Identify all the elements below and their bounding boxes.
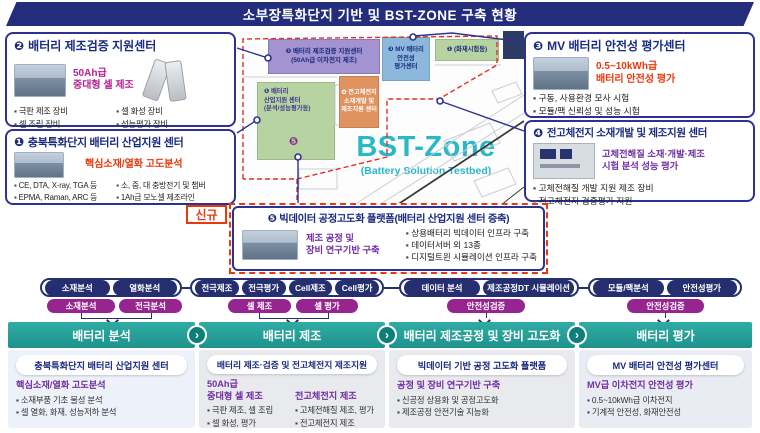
building-photo [242, 230, 298, 260]
center-box-5-header: ❺ 빅데이터 공정고도화 플랫폼(배터리 산업지원 센터 증축) [234, 210, 543, 225]
header-battery-manufacture: 배터리 제조 [199, 322, 385, 348]
map-block-manufacture-verify: ❷ 배터리 제조검증 지원센터 (50Ah급 이차전지 제조) [268, 39, 380, 74]
badge-1-icon: ❶ [14, 135, 24, 149]
header-battery-evaluation: 배터리 평가 [579, 322, 752, 348]
pill-electrode-eval: 전극평가 [242, 280, 286, 296]
body-battery-manufacture: 배터리 제조·검증 및 전고체전지 제조지원 50Ah급 중대형 셀 제조 극판… [199, 350, 385, 428]
pill-data-analysis: 데이터 분석 [404, 280, 480, 296]
pill-material-analysis: 소재분석 [45, 280, 110, 296]
analysis-list: CE, DTA, X-ray, TGA 등 소, 중, 대 충방전기 및 챔버 … [14, 180, 227, 203]
pill2-electrode-analysis: 전극분석 [119, 299, 182, 313]
solid-state-highlight: 고체전해질 소재·개발·제조 시험 분석 성능 평가 [602, 149, 705, 172]
arrow-right-icon: › [379, 327, 395, 343]
facility-pill: MV 배터리 안전성 평가센터 [587, 355, 744, 375]
page-title: 소부장특화단지 기반 및 BST-ZONE 구축 현황 [6, 2, 754, 26]
infra-list: 상용배터리 빅데이터 인프라 구축 데이터서버 외 13종 디지털트윈 시뮬레이… [406, 227, 537, 263]
capacity-highlight: 50Ah급 중대형 셀 제조 [73, 68, 134, 93]
pill-safety-eval: 안전성평가 [667, 280, 738, 296]
center-box-2: ❷ 배터리 제조검증 지원센터 50Ah급 중대형 셀 제조 극판 제조 장비 … [5, 32, 236, 127]
site-map: ❷ 배터리 제조검증 지원센터 (50Ah급 이차전지 제조) ❸ MV 배터리… [239, 29, 524, 205]
pill2-safety-verify-b: 안전성검증 [627, 299, 704, 313]
badge-2-icon: ❷ [14, 39, 24, 53]
facility-pill: 충북특화단지 배터리 산업지원 센터 [16, 355, 187, 375]
pill-module-pack-analysis: 모듈/팩분석 [593, 280, 664, 296]
platform-highlight: 제조 공정 및 장비 연구기반 구축 [306, 233, 398, 256]
bst-zone-label: BST-Zone (Battery Solution Testbed) [331, 133, 521, 177]
center-box-3: ❸ MV 배터리 안전성 평가센터 0.5~10kWh급 배터리 안전성 평가 … [524, 32, 755, 118]
building-photo [533, 57, 589, 90]
center-box-4-header: ❹ 전고체전지 소재개발 및 제조지원 센터 [533, 125, 746, 140]
pill2-cell-make: 셀 제조 [228, 299, 291, 313]
body-process-upgrade: 빅데이터 기반 공정 고도화 플랫폼 공정 및 장비 연구기반 구축 신공정 상… [389, 350, 575, 428]
pill-group-process: 데이터 분석 제조공정DT 시뮬레이션 [399, 278, 579, 297]
arrow-right-icon: › [189, 327, 205, 343]
battery-cells-image [141, 57, 189, 103]
badge-3-icon: ❸ [533, 39, 543, 53]
body-battery-analysis: 충북특화단지 배터리 산업지원 센터 핵심소재/열화 고도분석 소재부품 기초 … [8, 350, 195, 428]
body-battery-evaluation: MV 배터리 안전성 평가센터 MV급 이차전지 안전성 평가 0.5~10kW… [579, 350, 752, 428]
pill-group-manufacture: 전극제조 전극평가 Cell제조 Cell평가 [190, 278, 384, 297]
new-badge: 신규 [186, 205, 227, 224]
bst-zone-subtitle: (Battery Solution Testbed) [331, 165, 521, 177]
arrow-right-icon: › [569, 327, 585, 343]
capacity-highlight: 0.5~10kWh급 배터리 안전성 평가 [596, 61, 675, 86]
column-subtitle: 핵심소재/열화 고도분석 [16, 380, 187, 392]
center-box-2-header: ❷ 배터리 제조검증 지원센터 [14, 37, 227, 54]
pill2-safety-verify-a: 안전성검증 [447, 299, 525, 313]
center-box-3-header: ❸ MV 배터리 안전성 평가센터 [533, 37, 746, 54]
pill-electrode-make: 전극제조 [195, 280, 239, 296]
center-box-5: ❺ 빅데이터 공정고도화 플랫폼(배터리 산업지원 센터 증축) 제조 공정 및… [229, 203, 548, 274]
group-connector [182, 287, 190, 289]
column-subtitle: MV급 이차전지 안전성 평가 [587, 380, 744, 392]
analysis-highlight: 핵심소재/열화 고도분석 [85, 159, 183, 172]
center-box-1-header: ❶ 충북특화단지 배터리 산업지원 센터 [14, 134, 227, 150]
badge-5-icon: ❺ [268, 213, 277, 225]
pill-cell-make: Cell제조 [289, 280, 333, 296]
center-box-1: ❶ 충북특화단지 배터리 산업지원 센터 핵심소재/열화 고도분석 CE, DT… [5, 129, 236, 205]
equipment-photo [533, 143, 595, 179]
pill-cell-eval: Cell평가 [335, 280, 379, 296]
group-connector [579, 287, 588, 289]
subcol-large-cell: 50Ah급 중대형 셀 제조 극판 제조, 셀 조립 셀 화성, 평가 [207, 379, 289, 429]
test-list: 구동, 사용환경 모사 시험 모듈/팩 신뢰성 및 성능 시험 [533, 92, 746, 118]
map-block-industry-support: ❶ 배터리 산업지원 센터 (분석/성능평가동) [257, 82, 335, 160]
map-block-solid-state: ❹ 전고체전지 소재개발 및 제조지원 센터 [339, 76, 379, 128]
infographic-canvas: 소부장특화단지 기반 및 BST-ZONE 구축 현황 ❷ 배터리 제조검증 [0, 0, 760, 433]
header-battery-analysis: 배터리 분석 [8, 322, 195, 348]
subcol-solid-state: 전고체전지 제조 고체전해질 제조, 평가 전고체전지 제조 [295, 379, 377, 429]
center-box-4: ❹ 전고체전지 소재개발 및 제조지원 센터 고체전해질 소재·개발·제조 시험… [524, 120, 755, 202]
header-process-upgrade: 배터리 제조공정 및 장비 고도화 [389, 322, 575, 348]
badge-4-icon: ❹ [533, 126, 543, 140]
pill-group-evaluation: 모듈/팩분석 안전성평가 [588, 278, 742, 297]
support-list: 고체전해질 개발 지원 제조 장비 전고체전지 검증평가 지원 [533, 182, 746, 208]
pill2-cell-eval: 셀 평가 [296, 299, 358, 313]
map-block-fire-test: ❶ (화재시험동) [435, 39, 499, 61]
building-photo [14, 152, 64, 178]
building-photo [14, 64, 66, 97]
equipment-list: 극판 제조 장비 셀 화성 장비 셀 조립 장비 성능평가 장비 [14, 105, 227, 130]
pill2-material-analysis: 소재분석 [47, 299, 115, 313]
column-subtitle: 공정 및 장비 연구기반 구축 [397, 380, 567, 392]
pill-group-analysis: 소재분석 열화분석 [40, 278, 182, 297]
map-block-dark-parcel [503, 31, 524, 59]
pill-dt-simulation: 제조공정DT 시뮬레이션 [483, 280, 574, 296]
map-block-mv-safety: ❸ MV 배터리 안전성 평가센터 [382, 37, 430, 81]
bst-zone-title: BST-Zone [331, 133, 521, 162]
pill-degradation-analysis: 열화분석 [113, 280, 178, 296]
facility-pill: 배터리 제조·검증 및 전고체전지 제조지원 [207, 355, 377, 374]
facility-pill: 빅데이터 기반 공정 고도화 플랫폼 [397, 355, 567, 375]
map-marker-5: ❺ [289, 135, 298, 148]
group-connector [384, 287, 399, 289]
